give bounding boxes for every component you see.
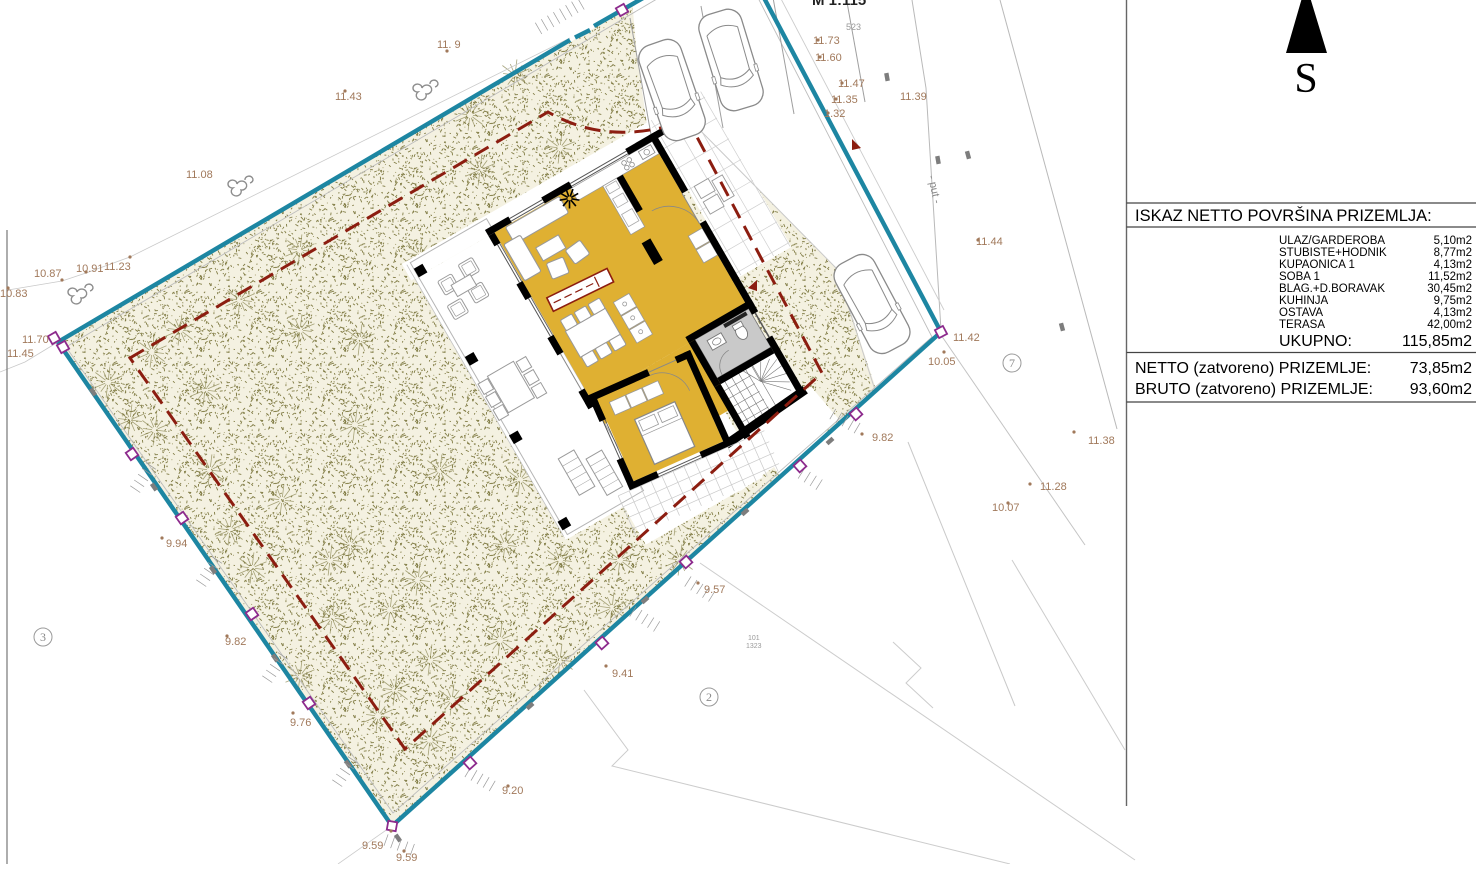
svg-text:ULAZ/GARDEROBA: ULAZ/GARDEROBA xyxy=(1279,235,1385,247)
svg-text:9.20: 9.20 xyxy=(502,785,523,797)
svg-text:9,75m2: 9,75m2 xyxy=(1434,295,1472,307)
svg-text:11,52m2: 11,52m2 xyxy=(1428,271,1472,283)
svg-text:93,60m2: 93,60m2 xyxy=(1410,381,1472,398)
svg-text:TERASA: TERASA xyxy=(1279,319,1325,331)
svg-text:S: S xyxy=(1294,56,1317,102)
svg-text:11.08: 11.08 xyxy=(186,169,213,181)
svg-text:1323: 1323 xyxy=(746,643,762,650)
svg-text:11.44: 11.44 xyxy=(976,236,1003,248)
svg-text:11.42: 11.42 xyxy=(953,332,980,344)
svg-text:OSTAVA: OSTAVA xyxy=(1279,307,1323,319)
svg-text:42,00m2: 42,00m2 xyxy=(1427,319,1472,331)
svg-text:ISKAZ NETTO POVRŠINA PRIZEMLJA: ISKAZ NETTO POVRŠINA PRIZEMLJA: xyxy=(1135,206,1432,225)
svg-text:9.94: 9.94 xyxy=(166,538,187,550)
svg-text:9.57: 9.57 xyxy=(704,584,725,596)
svg-text:8,77m2: 8,77m2 xyxy=(1434,247,1472,259)
svg-text:11.70: 11.70 xyxy=(22,334,49,346)
svg-text:11.28: 11.28 xyxy=(1040,481,1067,493)
svg-text:4,13m2: 4,13m2 xyxy=(1434,259,1472,271)
svg-text:11.38: 11.38 xyxy=(1088,435,1115,447)
svg-text:10.87: 10.87 xyxy=(34,268,62,280)
svg-text:10.91: 10.91 xyxy=(76,263,104,275)
svg-text:UKUPNO:: UKUPNO: xyxy=(1279,333,1352,350)
svg-text:9.82: 9.82 xyxy=(225,636,246,648)
svg-text:11.43: 11.43 xyxy=(335,91,362,103)
svg-text:11. 9: 11. 9 xyxy=(437,39,461,51)
svg-text:10.83: 10.83 xyxy=(0,288,28,300)
svg-text:30,45m2: 30,45m2 xyxy=(1427,283,1472,295)
svg-text:101: 101 xyxy=(748,635,760,642)
svg-text:NETTO (zatvoreno) PRIZEMLJE:: NETTO (zatvoreno) PRIZEMLJE: xyxy=(1135,360,1371,377)
svg-text:3: 3 xyxy=(40,630,46,644)
svg-text:11.39: 11.39 xyxy=(900,91,927,103)
svg-text:9.59: 9.59 xyxy=(362,840,383,852)
svg-text:BLAG.+D.BORAVAK: BLAG.+D.BORAVAK xyxy=(1279,283,1385,295)
svg-text:11.23: 11.23 xyxy=(104,261,131,273)
svg-text:9.76: 9.76 xyxy=(290,717,311,729)
svg-text:10.07: 10.07 xyxy=(992,502,1020,514)
svg-text:9.59: 9.59 xyxy=(396,852,417,864)
svg-text:115,85m2: 115,85m2 xyxy=(1402,333,1472,350)
svg-text:M 1:115: M 1:115 xyxy=(812,0,866,9)
svg-text:10.05: 10.05 xyxy=(928,356,956,368)
svg-text:11.45: 11.45 xyxy=(7,348,34,360)
svg-text:STUBISTE+HODNIK: STUBISTE+HODNIK xyxy=(1279,247,1387,259)
svg-text:523: 523 xyxy=(846,22,861,32)
svg-text:7: 7 xyxy=(1009,356,1015,370)
svg-text:SOBA 1: SOBA 1 xyxy=(1279,271,1320,283)
svg-text:9.82: 9.82 xyxy=(872,432,893,444)
svg-text:KUPAONICA 1: KUPAONICA 1 xyxy=(1279,259,1355,271)
svg-text:9.41: 9.41 xyxy=(612,668,633,680)
svg-text:4,13m2: 4,13m2 xyxy=(1434,307,1472,319)
svg-text:5,10m2: 5,10m2 xyxy=(1434,235,1472,247)
svg-text:BRUTO (zatvoreno) PRIZEMLJE:: BRUTO (zatvoreno) PRIZEMLJE: xyxy=(1135,381,1373,398)
svg-text:73,85m2: 73,85m2 xyxy=(1410,360,1472,377)
svg-text:2: 2 xyxy=(706,690,712,704)
svg-text:KUHINJA: KUHINJA xyxy=(1279,295,1329,307)
